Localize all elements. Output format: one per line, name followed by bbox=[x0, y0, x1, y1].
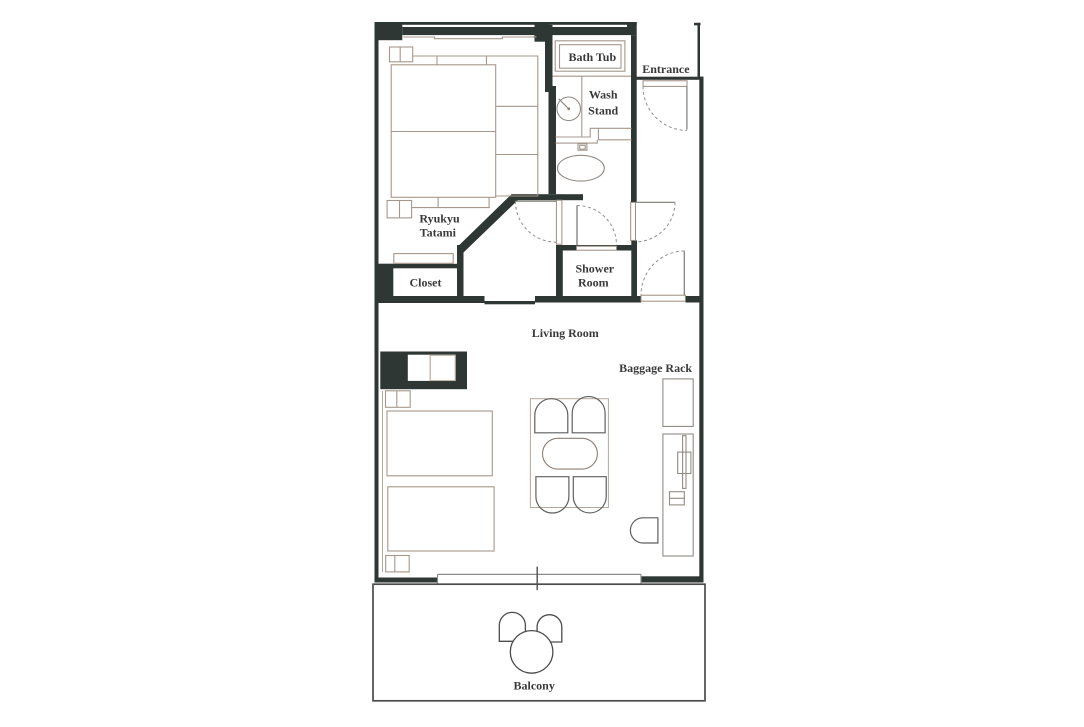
svg-text:Tatami: Tatami bbox=[420, 225, 457, 239]
svg-text:Room: Room bbox=[578, 275, 609, 289]
svg-text:Bath Tub: Bath Tub bbox=[568, 50, 616, 64]
svg-text:Entrance: Entrance bbox=[642, 62, 690, 76]
svg-text:Living Room: Living Room bbox=[532, 326, 599, 340]
svg-text:Stand: Stand bbox=[588, 103, 618, 117]
svg-text:Closet: Closet bbox=[410, 276, 442, 290]
svg-text:Baggage Rack: Baggage Rack bbox=[619, 361, 692, 375]
svg-text:Ryukyu: Ryukyu bbox=[419, 211, 460, 225]
svg-text:Shower: Shower bbox=[575, 261, 614, 275]
svg-text:Wash: Wash bbox=[589, 88, 618, 102]
svg-text:Balcony: Balcony bbox=[514, 678, 555, 692]
